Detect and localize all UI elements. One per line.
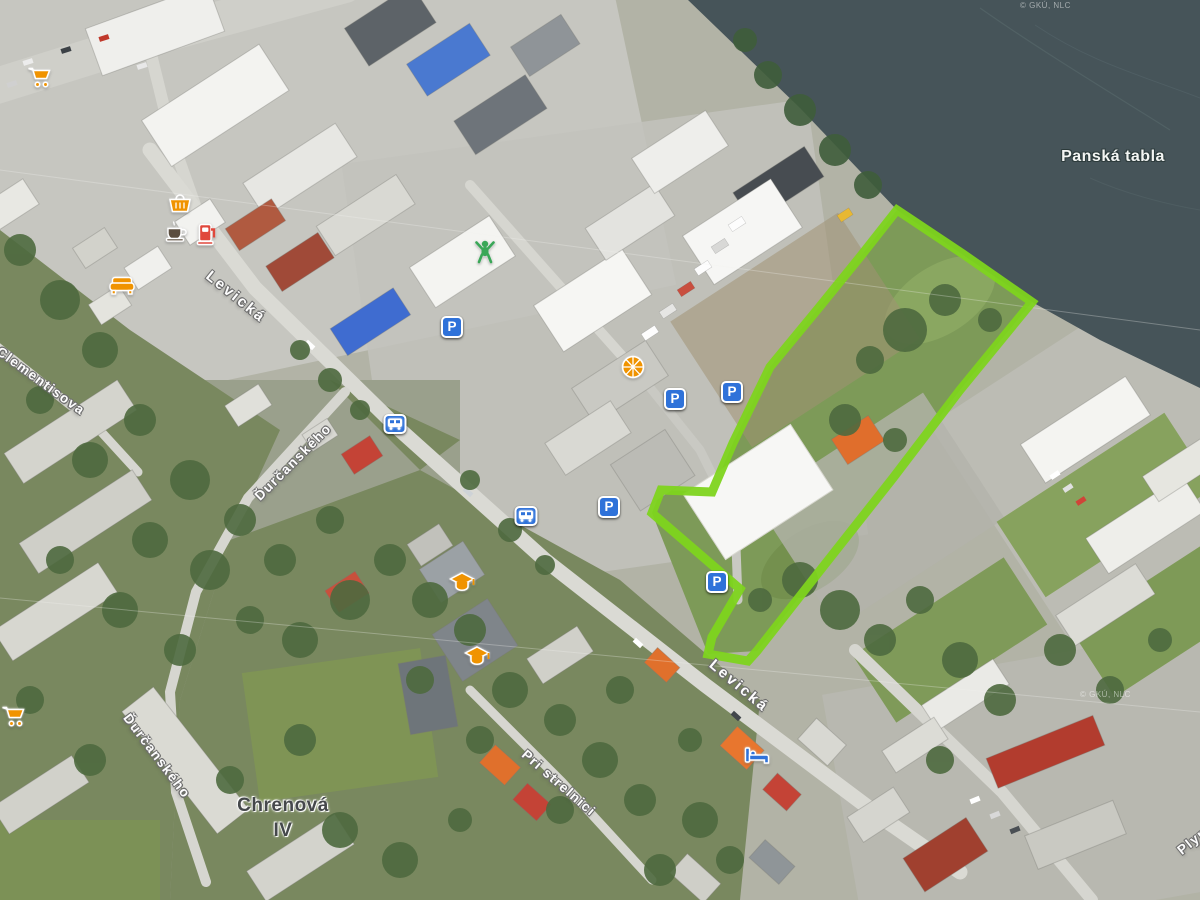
street-label-durcanskeho-south: Ďurčanského bbox=[120, 711, 193, 802]
label-layer: Panská tabla Levická Levická Clementisov… bbox=[0, 0, 1200, 900]
satellite-map: P P P P P bbox=[0, 0, 1200, 900]
copyright-watermark-bottom: © GKÚ, NLC bbox=[1080, 690, 1131, 699]
street-label-clementisova: Clementisova bbox=[0, 344, 88, 418]
street-label-levicka-north: Levická bbox=[202, 268, 269, 327]
district-label-line2: IV bbox=[237, 818, 329, 843]
street-label-levicka-south: Levická bbox=[706, 656, 773, 716]
district-label-line1: Chrenová bbox=[237, 793, 329, 818]
street-label-plynarenska: Plyná bbox=[1174, 818, 1200, 857]
copyright-watermark-top: © GKÚ, NLC bbox=[1020, 1, 1071, 10]
district-label-chrenova: Chrenová IV bbox=[237, 793, 329, 843]
street-label-durcanskeho-north: Ďurčanského bbox=[252, 421, 335, 504]
street-label-pri-strelnici: Pri strelnici bbox=[519, 747, 599, 819]
region-label-panska-tabla: Panská tabla bbox=[1061, 148, 1165, 166]
